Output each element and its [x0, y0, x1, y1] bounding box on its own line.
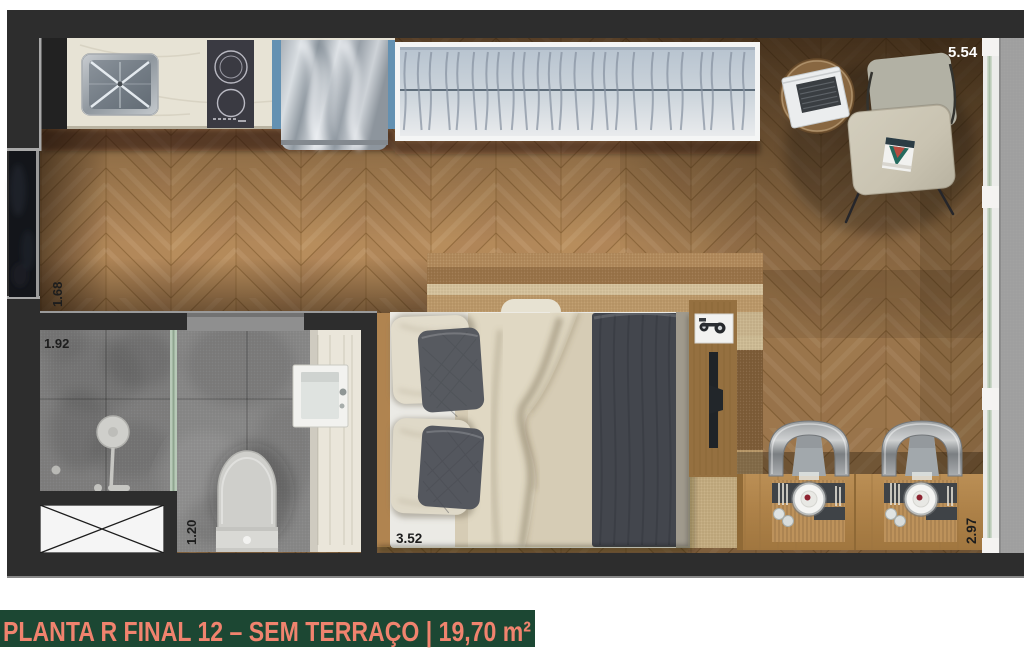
svg-text:1.92: 1.92 — [44, 336, 69, 351]
svg-text:1.68: 1.68 — [50, 282, 65, 307]
svg-text:2.97: 2.97 — [964, 518, 979, 544]
svg-text:5.54: 5.54 — [948, 44, 978, 61]
svg-text:3.52: 3.52 — [396, 531, 422, 546]
svg-text:PLANTA R FINAL 12 – SEM TERRAÇ: PLANTA R FINAL 12 – SEM TERRAÇO | 19,70 … — [3, 616, 531, 647]
svg-text:1.20: 1.20 — [184, 520, 199, 545]
